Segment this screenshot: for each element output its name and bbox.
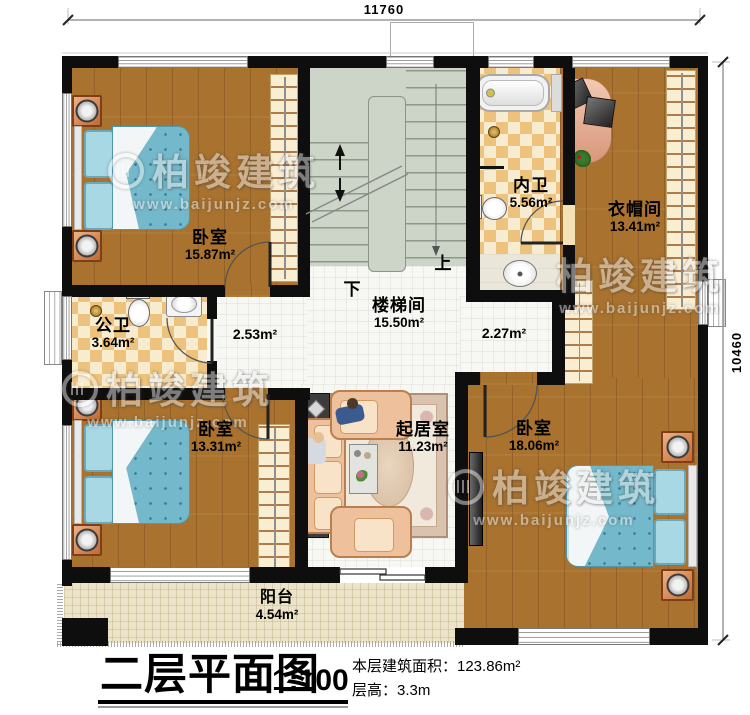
wall [207,297,217,319]
floor-plan-page: 柏竣建筑 www.baijunjz.com 柏竣建筑 www.baijunjz.… [0,0,750,715]
table-flowers [356,470,369,483]
table-decor [354,450,361,457]
wall [650,628,708,645]
drawing-scale: 1:100 [272,664,349,698]
armchair-cushion [354,518,394,552]
bed-blanket [113,127,157,230]
roof-outline [390,22,474,60]
tv-bedroom [469,452,483,546]
bed-mattress [112,126,190,230]
bath-shelf [551,74,562,112]
stair-direction-up: 上 [435,249,452,274]
room-area: 2.27m² [482,325,526,341]
bed-pillow [654,469,686,515]
window [62,296,72,360]
balcony-railing-bottom [57,641,464,647]
room-area: 2.53m² [233,326,277,342]
wall [207,361,217,390]
room-area: 15.50m² [372,315,426,332]
wall [455,628,518,645]
room-name: 卧室 [191,421,241,439]
floor-info: 本层建筑面积：123.86m² 层高：3.3m [352,655,520,703]
toilet-bowl [482,197,507,220]
stair-steps-right [406,70,466,272]
nightstand [72,230,102,262]
wall [310,567,340,583]
room-name: 起居室 [396,421,450,439]
sofa-cushion [314,461,342,494]
bed-pillow [84,476,114,524]
window-balcony-door [110,567,250,583]
nightstand [661,431,694,463]
title-underline-thin [98,706,348,708]
wall [455,372,468,583]
bed-headboard [74,126,82,230]
bed-pillow [654,519,686,565]
wardrobe [666,70,696,310]
wall [270,285,310,297]
bed-pillow [84,424,114,472]
wall [62,285,225,297]
wardrobe [270,74,298,282]
window [386,56,434,68]
room-label-bedroom-bottom-left: 卧室 13.31m² [191,421,241,456]
door-opening [563,205,575,245]
wall [552,302,565,380]
floor-area-text: 本层建筑面积：123.86m² [352,655,520,679]
dimension-top-value: 11760 [364,2,404,17]
window [62,93,72,227]
stair-direction-down: 下 [344,275,361,300]
room-label-inner-bath: 内卫 5.56m² [510,177,553,212]
room-label-bedroom-top-left: 卧室 15.87m² [185,229,235,264]
room-label-hall-left: 2.53m² [233,326,277,342]
bed-blanket [567,466,609,567]
wall [250,567,310,583]
stair-stringer [368,96,406,272]
room-label-cloakroom: 衣帽间 13.41m² [608,201,662,236]
bed-headboard [74,420,82,524]
person-head [347,398,358,409]
nightstand [661,569,694,601]
window [118,56,248,68]
door-opening [225,388,268,400]
window [698,281,708,325]
window [572,56,670,68]
bed-mattress [112,420,190,524]
wall [298,56,310,297]
wardrobe [258,424,290,570]
window [62,425,72,560]
nightstand [72,524,102,556]
room-label-living-room: 起居室 11.23m² [396,421,450,456]
room-label-stairwell: 楼梯间 15.50m² [372,297,426,332]
wall [466,290,575,302]
wall [537,372,565,385]
wall [468,372,480,385]
window [518,628,650,645]
stair-steps-left [310,142,368,272]
bay-window [44,291,62,365]
room-area: 13.41m² [608,219,662,236]
wall [62,567,110,583]
sliding-door-opening [340,567,425,583]
door-opening [225,285,270,297]
table-decor [364,452,371,459]
wall [62,388,225,400]
room-name: 楼梯间 [372,297,426,315]
room-area: 15.87m² [185,247,235,264]
computer-monitor [583,96,616,128]
room-area: 18.06m² [509,438,559,455]
bathtub [476,74,550,112]
bed-pillow [84,182,114,230]
room-name: 卧室 [509,420,559,438]
room-label-balcony: 阳台 4.54m² [256,590,299,624]
armchair [330,506,412,558]
wall [466,56,480,302]
bed-pillow [84,130,114,178]
floor-hallway-left [215,292,307,392]
room-name: 阳台 [256,590,299,607]
window [488,56,534,68]
room-name: 卧室 [185,229,235,247]
room-label-bedroom-bottom-right: 卧室 18.06m² [509,420,559,455]
door-opening [480,372,537,385]
room-area: 5.56m² [510,195,553,212]
nightstand [72,95,102,127]
wall [563,56,575,205]
room-area: 13.31m² [191,439,241,456]
bed-headboard [688,465,697,567]
floor-height-text: 层高：3.3m [352,679,520,703]
room-label-hall-right: 2.27m² [482,325,526,341]
room-area: 4.54m² [256,607,299,624]
potted-plant [574,150,591,167]
room-name: 公卫 [92,317,135,335]
room-area: 11.23m² [396,439,450,456]
room-area: 3.64m² [92,335,135,352]
wall [698,56,708,645]
bay-window [708,279,726,327]
bed-mattress [566,465,654,567]
room-name: 内卫 [510,177,553,195]
room-label-public-bath: 公卫 3.64m² [92,317,135,352]
wall [295,390,308,583]
room-name: 衣帽间 [608,201,662,219]
person-head [313,432,324,443]
title-underline-thick [98,700,348,704]
wall [62,618,108,646]
door-opening [207,319,217,361]
vanity-sink [503,260,537,287]
shower-head [488,126,500,138]
bed-blanket [113,421,157,524]
wall [425,567,468,583]
dimension-right-value: 10460 [729,332,744,373]
